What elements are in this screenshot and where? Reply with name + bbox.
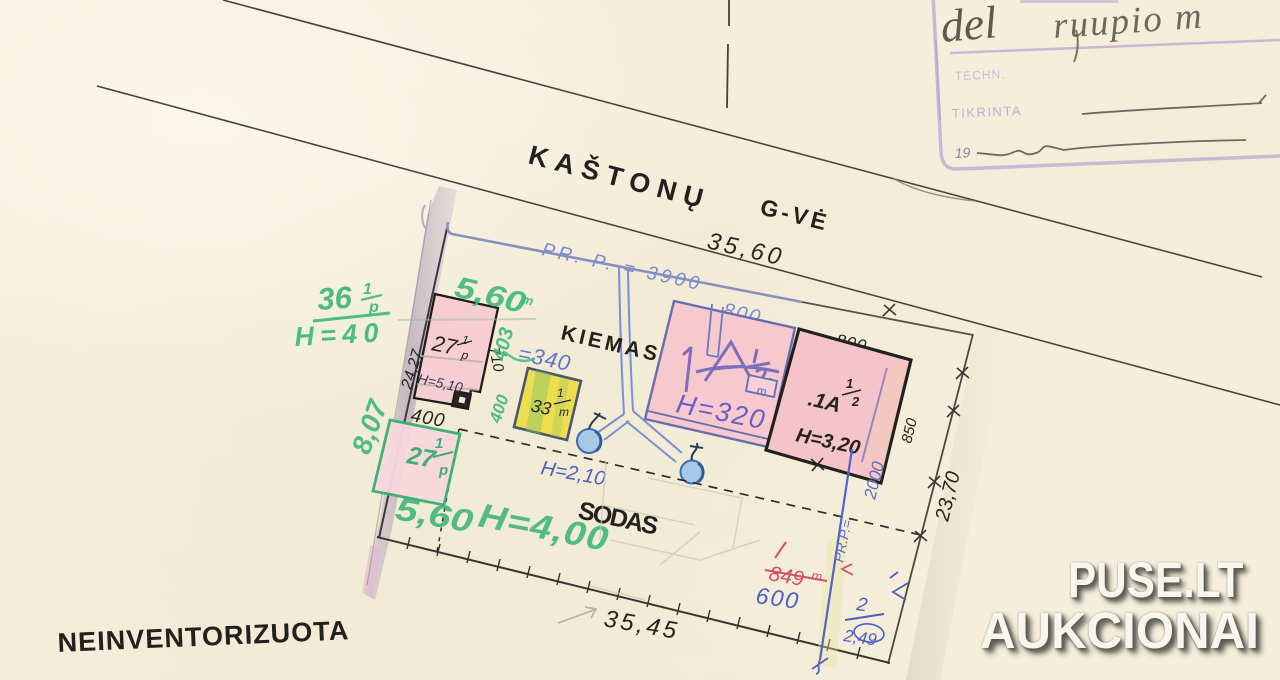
svg-text:H=2,10: H=2,10: [539, 457, 607, 490]
svg-text:2: 2: [854, 594, 869, 616]
svg-text:del: del: [938, 0, 998, 52]
svg-text:850: 850: [898, 416, 921, 445]
svg-text:NEINVENTORIZUOTA: NEINVENTORIZUOTA: [57, 615, 350, 658]
svg-text:TIKRINTA: TIKRINTA: [951, 103, 1022, 121]
svg-text:2: 2: [851, 394, 860, 409]
svg-text:PR. P. = 3900: PR. P. = 3900: [540, 239, 703, 295]
svg-text:KAŠTONŲ: KAŠTONŲ: [525, 139, 709, 215]
svg-text:ruupio m: ruupio m: [1052, 0, 1205, 47]
svg-text:1: 1: [846, 376, 853, 391]
svg-text:m: m: [520, 291, 535, 308]
svg-text:1: 1: [557, 386, 564, 400]
svg-text:33: 33: [529, 395, 553, 419]
svg-text:TECHN.: TECHN.: [955, 67, 1006, 83]
svg-text:2,49: 2,49: [841, 626, 878, 650]
svg-text:400: 400: [485, 392, 512, 426]
svg-text:36: 36: [316, 280, 354, 317]
svg-text:5,60: 5,60: [393, 490, 476, 539]
svg-text:G-VĖ: G-VĖ: [758, 194, 830, 236]
svg-text:1: 1: [435, 435, 443, 452]
svg-text:PR.P.=: PR.P.=: [830, 518, 855, 563]
svg-text:m: m: [559, 405, 569, 419]
svg-text:1: 1: [363, 281, 372, 298]
svg-text:p: p: [438, 462, 448, 479]
svg-text:35,60: 35,60: [705, 228, 785, 271]
svg-text:35,45: 35,45: [602, 605, 680, 644]
svg-text:600: 600: [754, 582, 802, 614]
svg-text:H=40: H=40: [294, 318, 379, 352]
svg-text:19: 19: [954, 144, 971, 161]
svg-text:=340: =340: [516, 340, 574, 376]
svg-text:KIEMAS: KIEMAS: [559, 321, 662, 366]
svg-text:m: m: [810, 568, 823, 585]
